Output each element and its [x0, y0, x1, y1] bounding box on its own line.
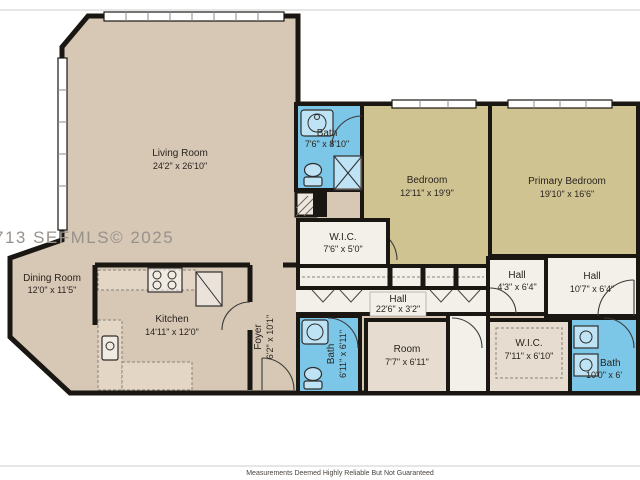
bath-right-dims: 10'0" x 6' — [586, 370, 622, 380]
toilet-icon — [305, 368, 322, 381]
foyer-label: Foyer — [253, 324, 264, 350]
room-dims: 7'7" x 6'11" — [385, 357, 429, 367]
bedroom-label: Bedroom — [407, 175, 448, 186]
room-label: Room — [394, 344, 421, 355]
bedroom-dims: 12'11" x 19'9" — [400, 188, 454, 198]
room-bath-right — [570, 318, 638, 393]
foyer-hall-opening — [296, 290, 302, 312]
bath-right-label: Bath — [600, 358, 621, 369]
hall-main-dims: 22'6" x 3'2" — [376, 304, 420, 314]
wic-top-dims: 7'6" x 5'0" — [323, 244, 362, 254]
toilet-icon — [305, 164, 322, 177]
stove-icon — [148, 268, 182, 292]
toilet-tank-icon — [304, 381, 322, 389]
utility-closet — [296, 191, 327, 217]
mls-watermark: 713 SEFMLS© 2025 — [0, 228, 174, 247]
wic-bottom-dims: 7'11" x 6'10" — [505, 351, 554, 361]
hall-small-label: Hall — [508, 270, 525, 281]
foyer-dims: 6'2" x 10'1" — [265, 315, 275, 359]
kitchen-counter-bottom — [122, 362, 192, 390]
primary-bedroom-dims: 19'10" x 16'6" — [540, 189, 594, 199]
living-room-label: Living Room — [152, 148, 208, 159]
wic-bottom-label: W.I.C. — [515, 338, 542, 349]
floorplan-page: Living Room 24'2" x 26'10" Dining Room 1… — [0, 0, 640, 480]
hall-vertical — [448, 314, 488, 393]
window-living-left — [58, 58, 67, 230]
window-bedroom — [392, 100, 476, 108]
sink-vanity-icon — [574, 326, 598, 348]
disclaimer-text: Measurements Deemed Highly Reliable But … — [246, 470, 434, 477]
primary-bedroom-label: Primary Bedroom — [528, 176, 606, 187]
bath-mid-dims: 6'11" x 6'11" — [338, 330, 348, 378]
wall-chunk — [313, 191, 327, 217]
kitchen-label: Kitchen — [155, 314, 188, 325]
kitchen-dims: 14'11" x 12'0" — [145, 327, 199, 337]
window-living-top — [104, 12, 284, 21]
dining-room-label: Dining Room — [23, 273, 81, 284]
dining-room-dims: 12'0" x 11'5" — [28, 285, 77, 295]
hall-right-label: Hall — [583, 271, 600, 282]
hall-closets — [298, 266, 488, 288]
toilet-tank-icon — [304, 177, 322, 186]
wic-top-floor — [298, 220, 388, 266]
kitchen-sink-icon — [102, 336, 118, 360]
bath-mid-label: Bath — [326, 344, 337, 365]
hall-right-dims: 10'7" x 6'4" — [570, 284, 614, 294]
hall-vertical-floor — [448, 314, 488, 393]
living-room-dims: 24'2" x 26'10" — [153, 161, 207, 171]
bath-top-dims: 7'6" x 8'10" — [305, 139, 349, 149]
hall-small-dims: 4'3" x 6'4" — [497, 282, 536, 292]
room-wic-top — [298, 220, 388, 266]
floorplan-drawing: Living Room 24'2" x 26'10" Dining Room 1… — [0, 0, 640, 480]
bath-top-label: Bath — [317, 128, 338, 139]
wic-top-label: W.I.C. — [329, 232, 356, 243]
